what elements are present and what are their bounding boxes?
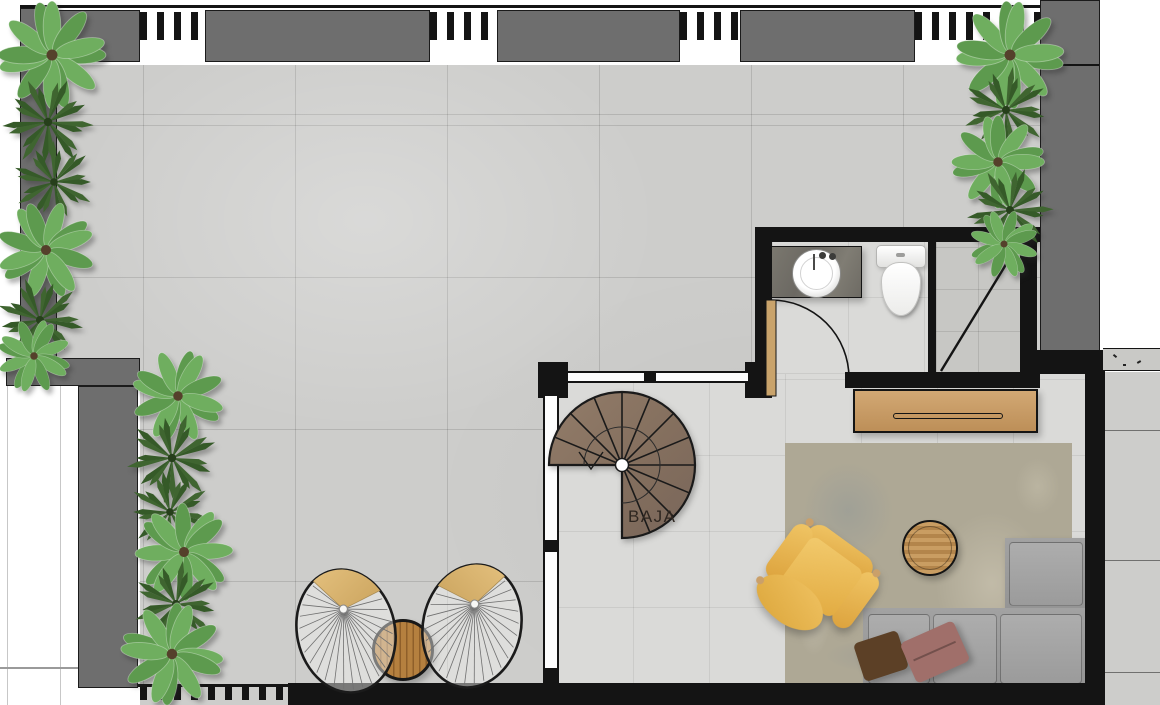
glass-wall-west [543,396,559,688]
lower-left-parapet [78,386,138,688]
top-wall-segment [740,10,915,62]
faucet-stem [813,254,815,270]
faucet-knob [819,252,826,259]
plant-center [1004,49,1017,62]
console-table [853,389,1038,433]
ledge-mark [1137,360,1141,364]
bathroom-wall-top [755,227,1040,242]
patio-slat-table [372,619,434,681]
ledge-mark [1123,364,1126,366]
mullion [644,373,656,381]
sofa-cushion [1000,614,1082,684]
louver-strip [430,12,497,40]
louver-strip [915,12,1040,40]
window-post [745,362,772,398]
louver-strip [140,12,205,40]
tile-joint-line [1105,672,1160,673]
tile-joint-line [1105,430,1160,431]
mullion [545,540,557,552]
glass-wall-north [568,371,748,383]
site-line [60,385,61,705]
pouf-seam [913,641,956,661]
mullion [545,668,557,688]
table-edge-ring [908,526,952,570]
window-post [538,362,568,398]
site-line [7,385,8,705]
fern-leaf [955,37,1008,63]
site-line [0,667,78,669]
toilet-bowl [881,262,921,316]
bathroom-partition [928,242,936,374]
ledge-mark [1113,354,1117,358]
toilet [876,245,924,315]
tile-joint-line [1105,560,1160,561]
side-walkway-floor [1105,372,1160,705]
faucet-knob [829,253,836,260]
floor-plan: BAJA [0,0,1160,705]
console-handle-slot [893,413,1003,419]
bottom-wall [288,683,1105,705]
interior-wall-right [1085,350,1105,705]
railing-teeth [140,687,290,700]
basin-rim [800,257,833,290]
sofa-cushion [1009,542,1083,606]
shower-floor [936,242,1020,374]
bathroom-countertop [770,246,862,298]
top-wall-segment [205,10,430,62]
flush-button [896,253,905,257]
roof-joint-line [1041,64,1099,66]
left-parapet-wall [20,8,57,362]
top-wall-segment [497,10,680,62]
parapet-jog [6,358,140,386]
neighbor-roof-band [1040,0,1100,352]
top-boundary-line [20,5,1100,8]
round-coffee-table [902,520,958,576]
louver-strip [680,12,740,40]
side-ledge [1103,348,1160,371]
bathroom-wall-bottom [845,372,1040,388]
